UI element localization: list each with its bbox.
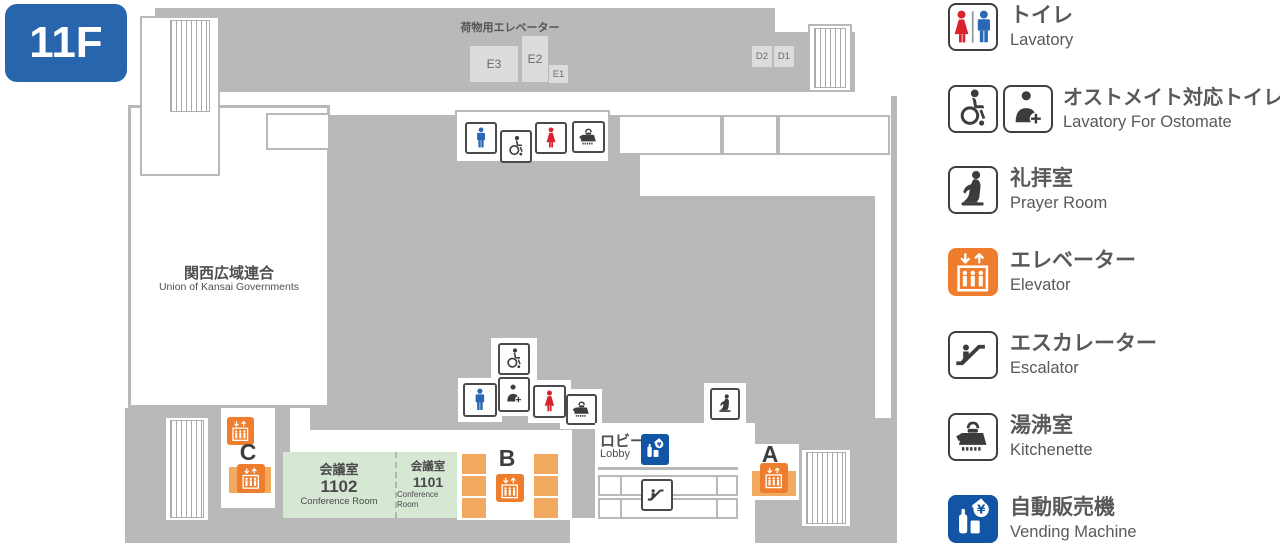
cargo-car-e1: E1 [549,65,568,83]
legend-row-escalator: エスカレーター Escalator [948,331,1280,379]
lobby-divider-line [598,467,738,470]
escalator-track-divider [716,477,718,495]
elevator-b-shaft [462,498,486,518]
elevator-b-shaft [462,476,486,496]
accessible-toilet-icon [948,85,998,133]
stairs-bottom-left [170,420,204,518]
kitchenette-icon [572,121,605,153]
legend-row-elevator: エレベーター Elevator [948,248,1280,296]
floor-map-11f: 荷物用エレベーター E3 E2 E1 D2 D1 関西広域連合 Union of… [0,0,1280,551]
legend-jp: エレベーター [1010,248,1136,274]
legend-row-vending: 自動販売機 Vending Machine [948,495,1280,543]
prayer-room-icon [948,166,998,214]
elevator-icon-c2 [237,464,265,493]
lobby-label-en: Lobby [600,448,630,460]
wall-lobby-left [572,425,595,518]
room-band-1 [618,115,722,155]
legend-row-kitchenette: 湯沸室 Kitchenette [948,413,1280,461]
room-top-notch [266,113,330,150]
stairs-bottom-right [806,452,846,524]
legend-row-ostomate: オストメイト対応トイレ Lavatory For Ostomate [948,85,1280,133]
union-room-name-en: Union of Kansai Governments [128,281,330,293]
legend-en: Vending Machine [1010,521,1137,543]
escalator-icon [641,479,673,511]
ostomate-icon [498,377,530,412]
elevator-b-shaft [534,476,558,496]
stairs-top-left [170,20,210,112]
stairs-top-right [814,28,846,88]
conference-room-1102: 会議室 1102 Conference Room [283,452,395,518]
wall-right-edge [891,96,897,543]
elevator-bank-c-label: C [233,440,263,464]
lavatory-icon [948,3,998,51]
conference-room-1101-en: Conference Room [397,490,459,510]
conference-room-1101-jp: 会議室 [411,460,446,474]
legend-en: Elevator [1010,274,1136,296]
legend-en: Lavatory For Ostomate [1063,111,1280,133]
legend-row-lavatory: トイレ Lavatory [948,3,1280,51]
union-room-name-jp: 関西広域連合 [128,262,330,283]
accessible-toilet-icon [500,130,532,163]
elevator-bank-b-label: B [492,446,522,470]
elevator-b-shaft [462,454,486,474]
conference-room-1102-number: 1102 [321,477,358,496]
legend-jp: 湯沸室 [1010,413,1093,439]
legend-jp: トイレ [1010,3,1073,29]
kitchenette-icon [566,394,597,425]
cargo-elevator-label: 荷物用エレベーター [445,19,575,35]
legend-jp: エスカレーター [1010,331,1157,357]
legend-jp: 自動販売機 [1010,495,1137,521]
floor-badge: 11F [5,4,127,82]
legend-en: Prayer Room [1010,192,1107,214]
cargo-car-e3: E3 [470,46,518,82]
elevator-b-shaft [534,454,558,474]
wall-conference-left [275,452,283,518]
vending-machine-icon [948,495,998,543]
legend-en: Kitchenette [1010,439,1093,461]
prayer-room-icon [710,388,740,420]
escalator-icon [948,331,998,379]
escalator-track-divider [620,477,622,495]
room-band-2 [722,115,778,155]
conference-room-1101: 会議室 1101 Conference Room [395,452,459,518]
vending-machine-icon [641,434,669,465]
escalator-track-divider [716,500,718,518]
cargo-car-e2: E2 [522,36,548,82]
accessible-toilet-icon [498,343,530,375]
male-toilet-icon [463,383,497,417]
legend-jp: オストメイト対応トイレ [1063,85,1280,111]
male-toilet-icon [465,122,497,154]
wall-central-core-right [640,196,875,430]
escalator-track-divider [620,500,622,518]
female-toilet-icon [533,385,566,418]
legend-row-prayer: 礼拝室 Prayer Room [948,166,1280,214]
pillar [331,411,340,420]
pillar [400,411,409,420]
car-d1: D1 [774,46,794,67]
elevator-icon [948,248,998,296]
car-d2: D2 [752,46,772,67]
female-toilet-icon [535,122,567,154]
conference-room-1101-number: 1101 [413,474,443,490]
conference-room-1102-en: Conference Room [300,496,377,508]
elevator-icon-b [496,474,524,502]
elevator-icon-a [760,463,788,493]
legend-jp: 礼拝室 [1010,166,1107,192]
legend-en: Lavatory [1010,29,1073,51]
conference-room-1102-jp: 会議室 [319,462,358,477]
elevator-b-shaft [534,498,558,518]
ostomate-icon [1003,85,1053,133]
legend-en: Escalator [1010,357,1157,379]
kitchenette-icon [948,413,998,461]
room-band-3 [778,115,890,155]
